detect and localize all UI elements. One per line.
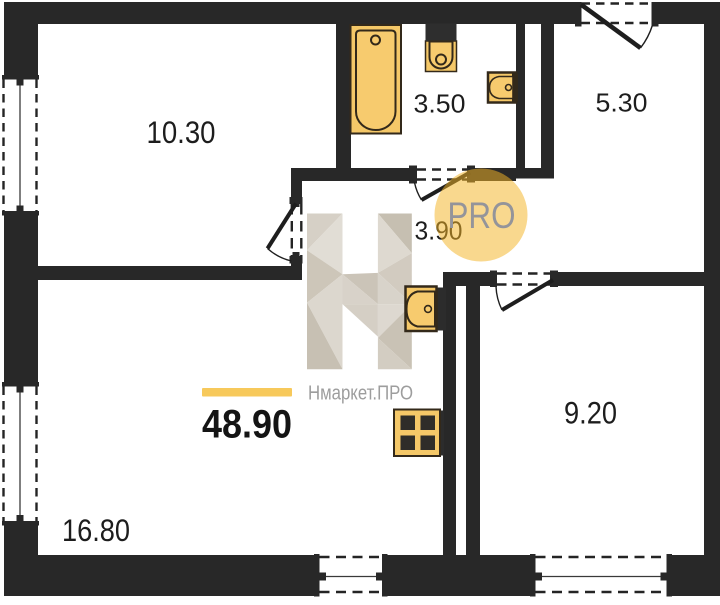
svg-text:48.90: 48.90 bbox=[202, 403, 292, 447]
svg-text:Нмаркет.ПРО: Нмаркет.ПРО bbox=[308, 382, 413, 405]
svg-text:10.30: 10.30 bbox=[147, 114, 216, 150]
svg-text:9.20: 9.20 bbox=[564, 395, 617, 431]
svg-text:PRO: PRO bbox=[448, 195, 516, 236]
svg-text:16.80: 16.80 bbox=[62, 512, 130, 548]
svg-text:3.50: 3.50 bbox=[414, 91, 466, 119]
svg-text:5.30: 5.30 bbox=[596, 90, 648, 118]
